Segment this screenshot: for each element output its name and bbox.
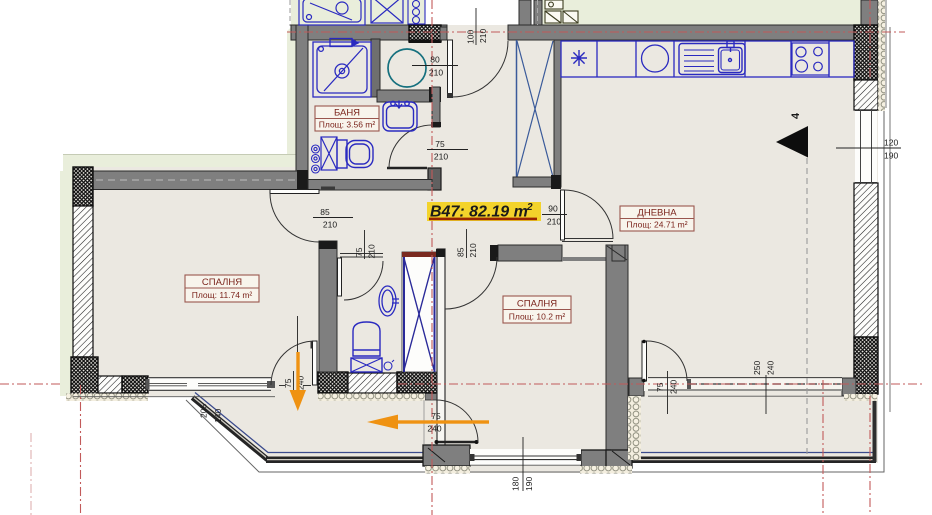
svg-text:210: 210 <box>323 220 337 230</box>
svg-text:Площ: 10.2 m²: Площ: 10.2 m² <box>509 312 566 322</box>
svg-text:75: 75 <box>354 247 364 257</box>
svg-text:210: 210 <box>429 68 443 78</box>
svg-text:240: 240 <box>427 424 441 434</box>
svg-text:210: 210 <box>468 243 478 257</box>
svg-text:Площ: 24.71 m²: Площ: 24.71 m² <box>626 220 687 230</box>
svg-text:210: 210 <box>367 244 377 258</box>
svg-text:120: 120 <box>884 138 898 148</box>
svg-text:210: 210 <box>434 152 448 162</box>
svg-text:190: 190 <box>884 151 898 161</box>
svg-text:100: 100 <box>466 30 476 44</box>
svg-text:75: 75 <box>435 139 445 149</box>
svg-text:240: 240 <box>669 380 679 394</box>
svg-text:СПАЛНЯ: СПАЛНЯ <box>517 299 557 310</box>
svg-text:80: 80 <box>430 55 440 65</box>
svg-text:БАНЯ: БАНЯ <box>334 108 360 119</box>
svg-text:75: 75 <box>655 382 665 392</box>
svg-text:75: 75 <box>431 411 441 421</box>
svg-text:Площ: 11.74 m²: Площ: 11.74 m² <box>192 290 253 300</box>
svg-text:СПАЛНЯ: СПАЛНЯ <box>202 277 242 288</box>
svg-text:180: 180 <box>511 477 521 491</box>
svg-text:2: 2 <box>526 202 533 213</box>
svg-text:85: 85 <box>320 207 330 217</box>
svg-text:240: 240 <box>766 361 776 375</box>
svg-text:Площ: 3.56 m²: Площ: 3.56 m² <box>319 120 376 130</box>
svg-text:ДНЕВНА: ДНЕВНА <box>637 208 677 219</box>
svg-text:210: 210 <box>547 217 561 227</box>
svg-text:205: 205 <box>199 404 209 418</box>
svg-text:90: 90 <box>548 204 558 214</box>
svg-text:4: 4 <box>790 112 802 119</box>
svg-text:210: 210 <box>478 29 488 43</box>
svg-text:75: 75 <box>283 378 293 388</box>
svg-text:140: 140 <box>213 409 223 423</box>
svg-text:250: 250 <box>752 361 762 375</box>
svg-text:190: 190 <box>524 477 534 491</box>
svg-text:85: 85 <box>456 247 466 257</box>
